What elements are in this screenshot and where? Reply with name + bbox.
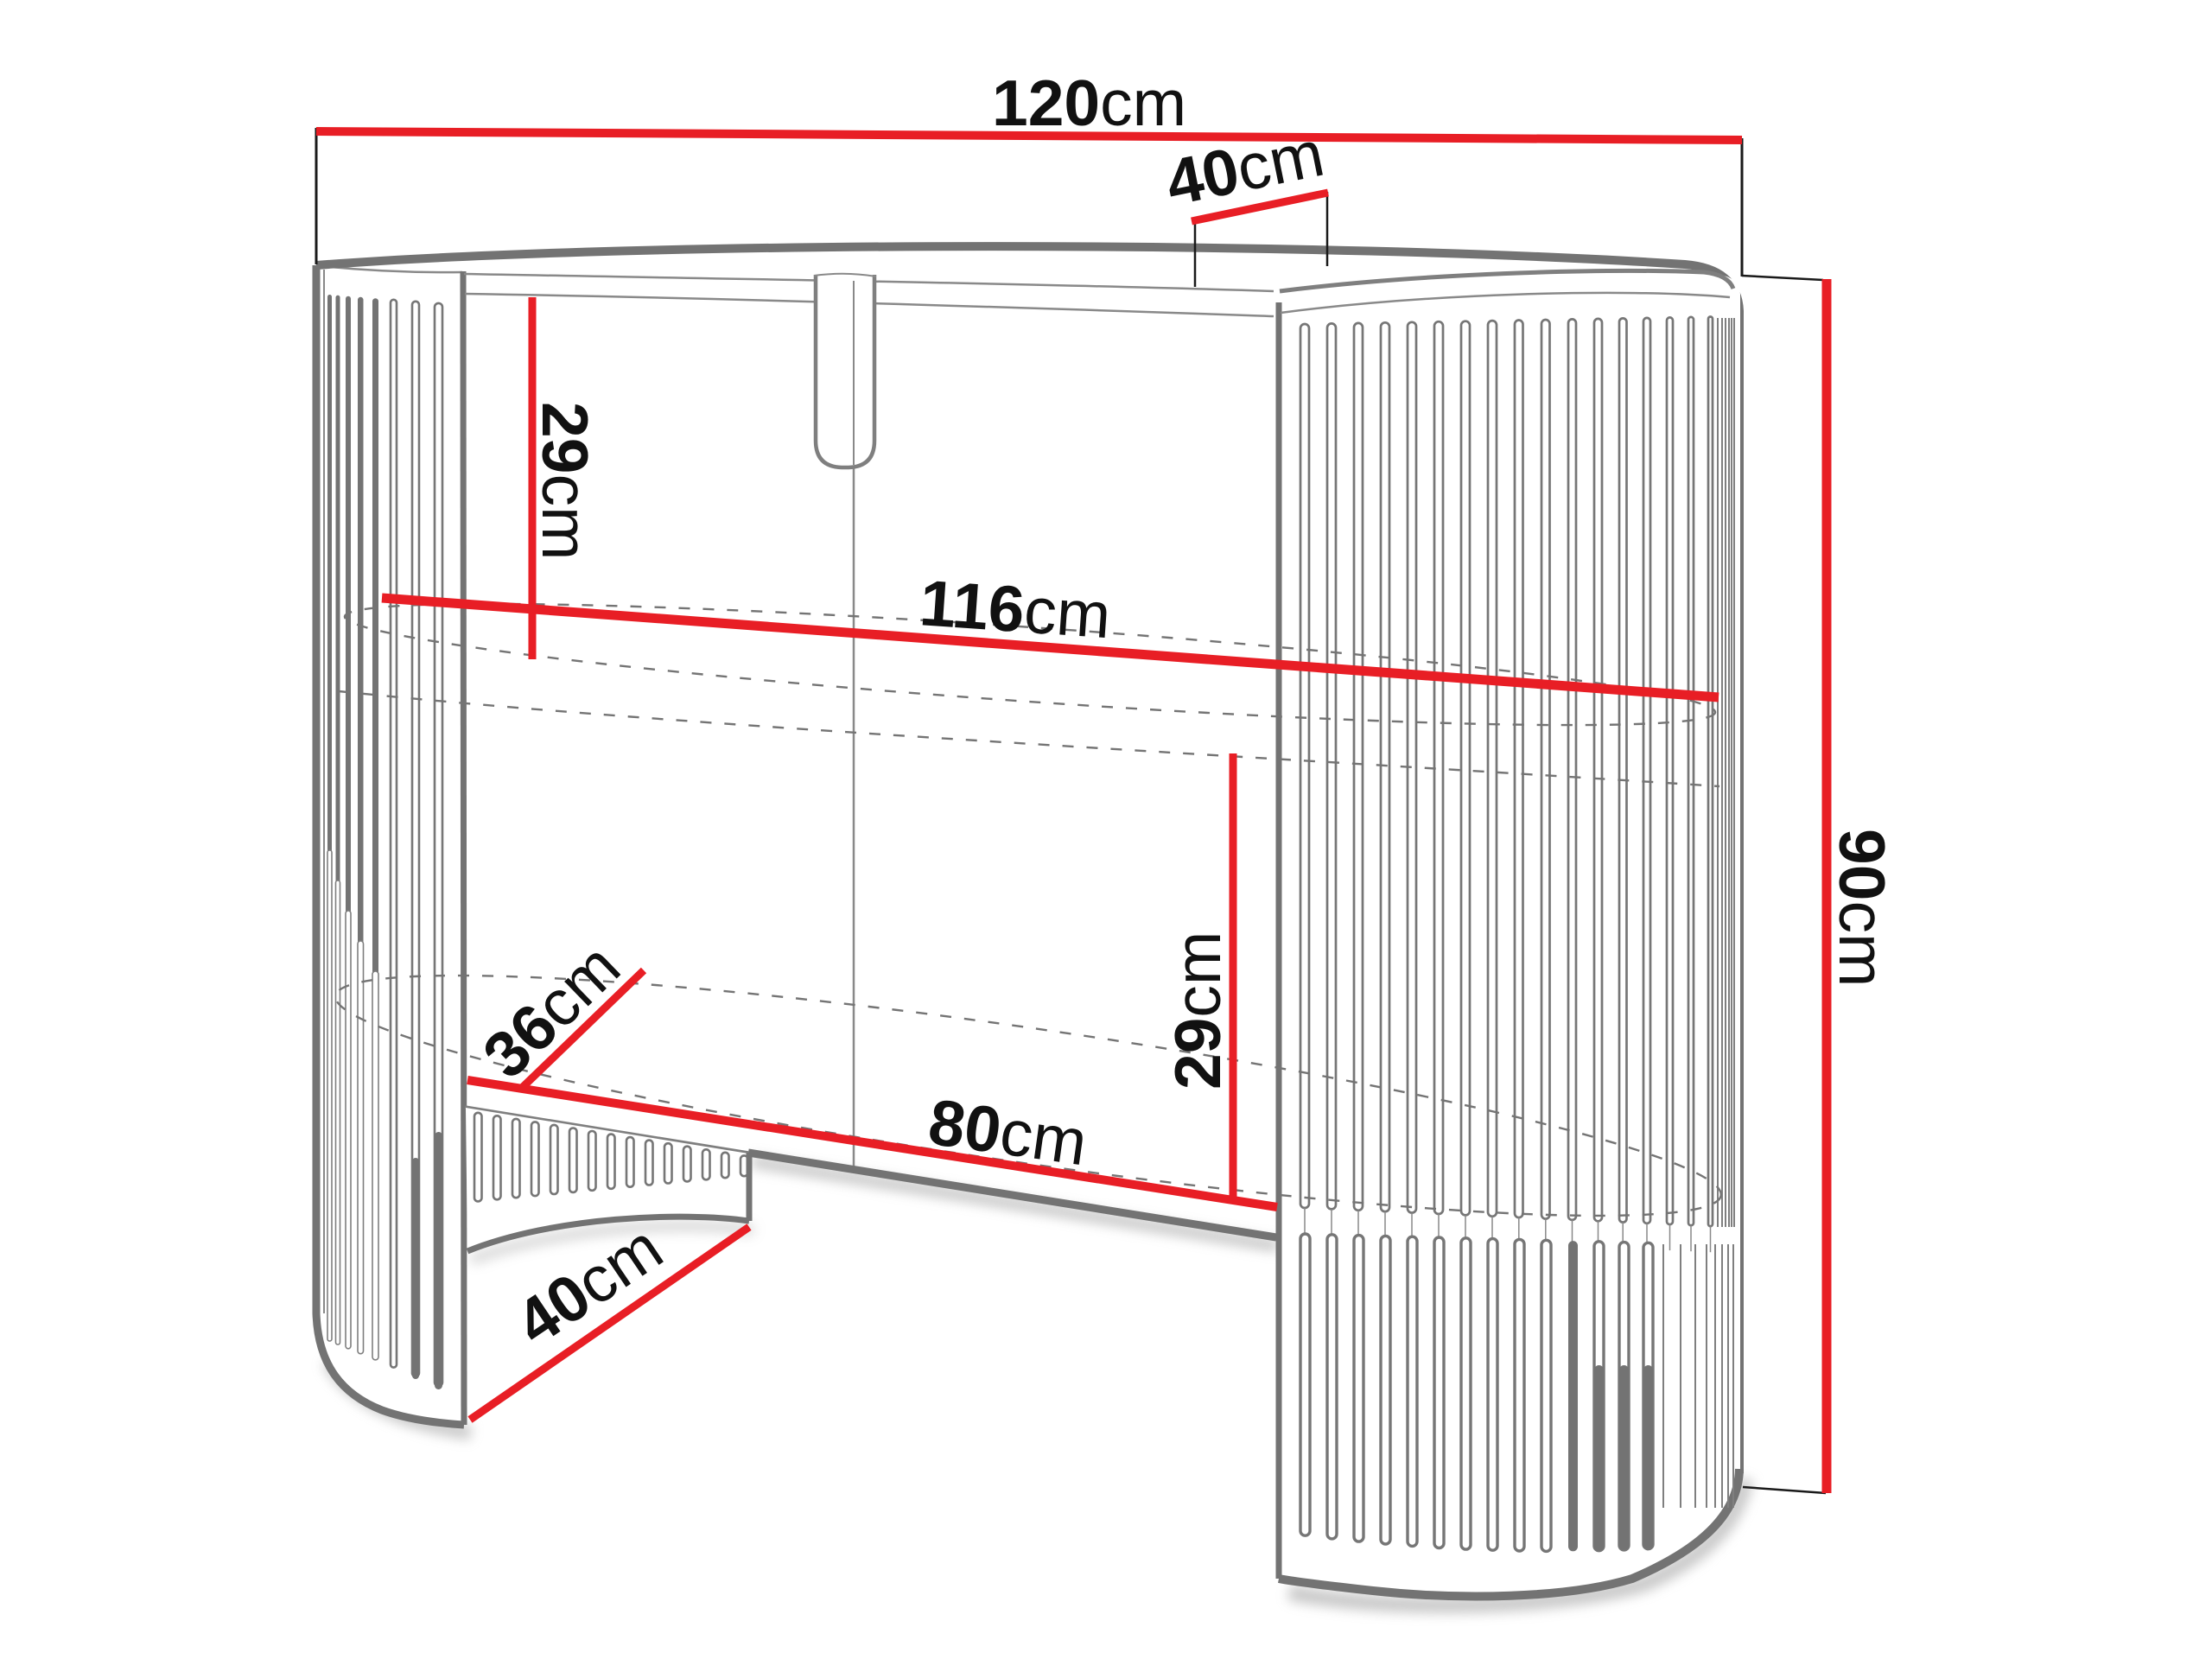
svg-text:120cm: 120cm — [992, 67, 1186, 139]
svg-text:90cm: 90cm — [1826, 829, 1898, 987]
svg-text:29cm: 29cm — [529, 402, 601, 560]
svg-text:116cm: 116cm — [918, 566, 1113, 652]
svg-text:29cm: 29cm — [1161, 931, 1234, 1090]
